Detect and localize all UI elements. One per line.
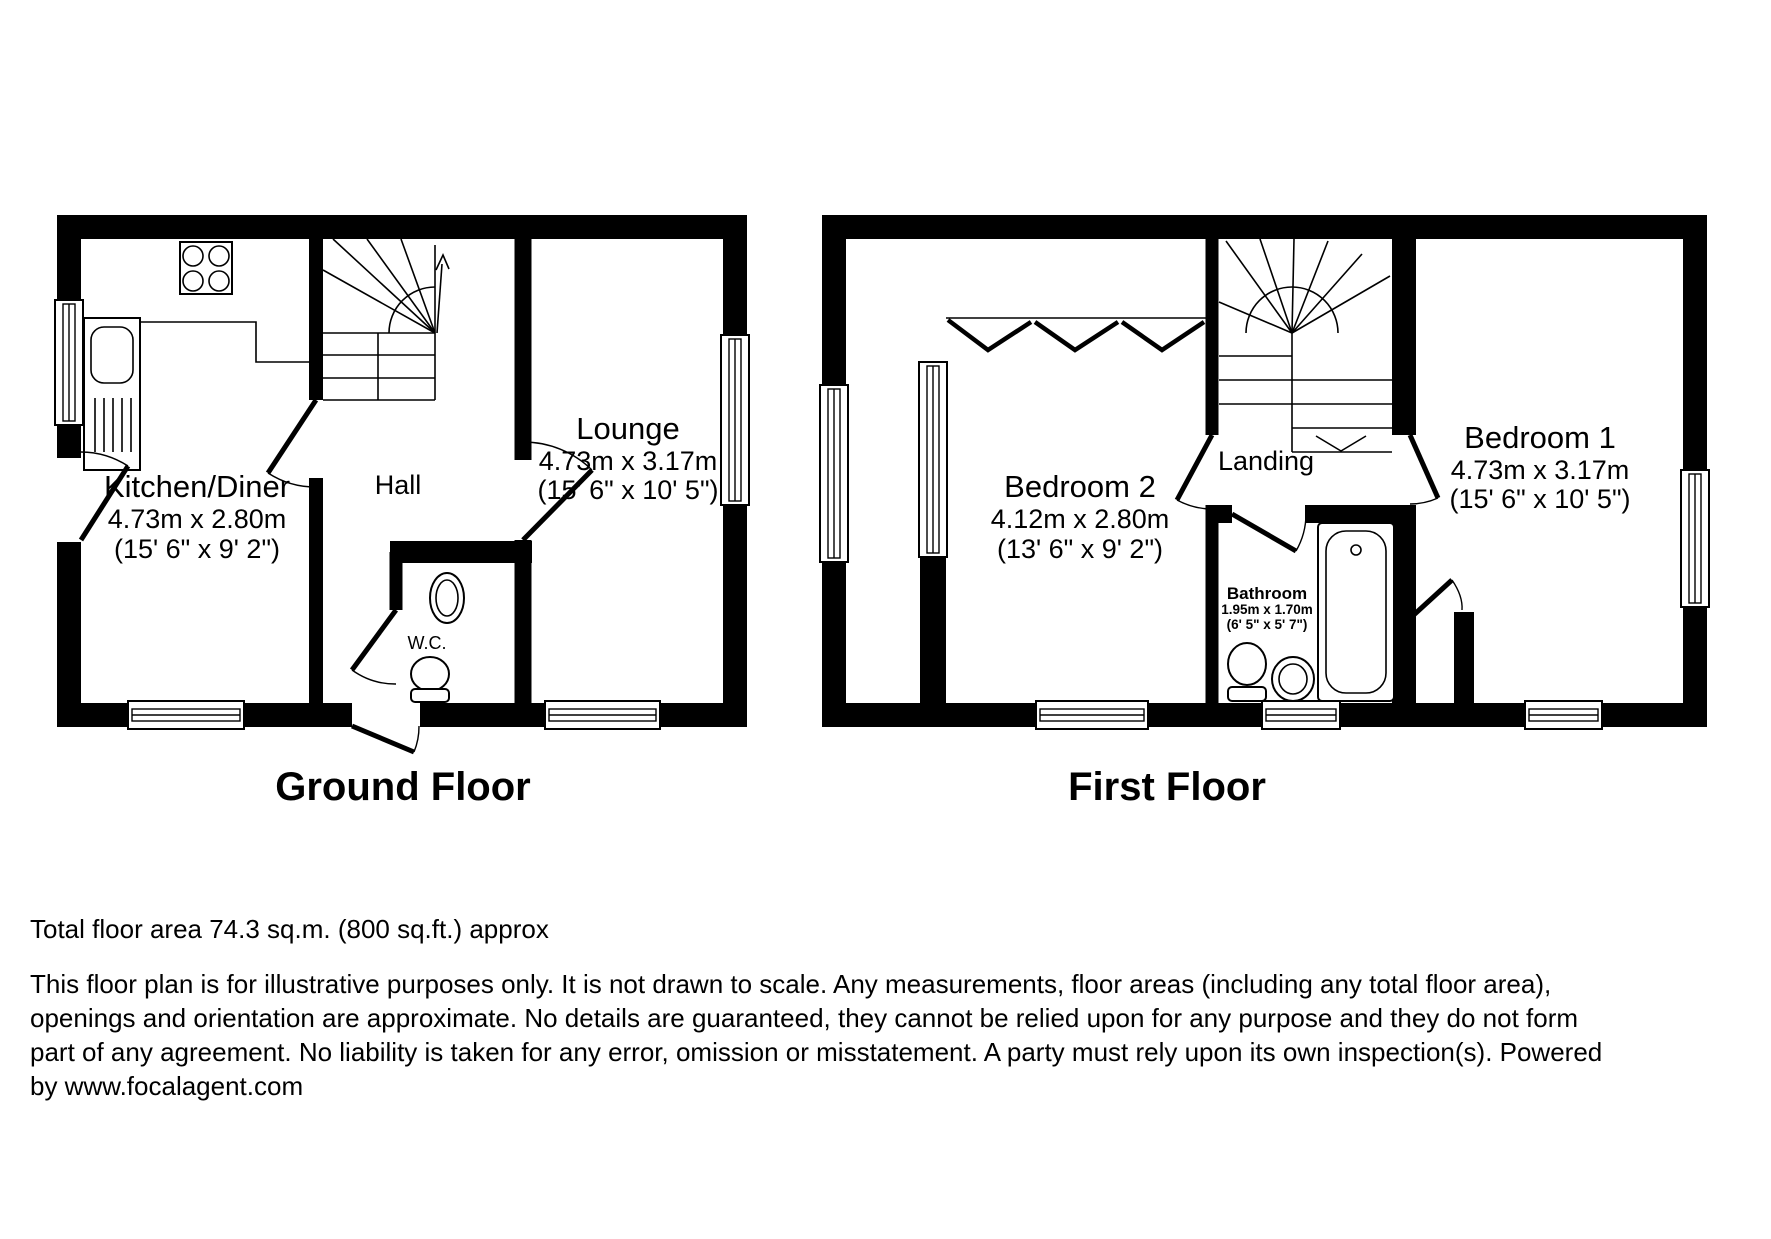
lounge-window-right — [721, 335, 749, 505]
first-window-bottom-left — [1036, 701, 1148, 729]
stairs-up-arrow — [436, 255, 449, 333]
first-floor-title: First Floor — [1068, 765, 1266, 809]
bedroom1-door — [1410, 435, 1438, 504]
bedroom1-dim-imperial: (15' 6" x 10' 5") — [1449, 484, 1630, 514]
wc-label: W.C. — [408, 633, 447, 653]
floorplan-page: Kitchen/Diner 4.73m x 2.80m (15' 6" x 9'… — [0, 0, 1771, 1239]
kitchen-dim-metric: 4.73m x 2.80m — [108, 504, 287, 534]
total-floor-area: Total floor area 74.3 sq.m. (800 sq.ft.)… — [30, 914, 1745, 945]
first-stairs-winders — [1219, 239, 1390, 333]
kitchen-label: Kitchen/Diner — [104, 469, 290, 504]
lounge-label: Lounge — [576, 411, 679, 446]
lounge-dim-imperial: (15' 6" x 10' 5") — [537, 475, 718, 505]
disclaimer-line-2: openings and orientation are approximate… — [30, 1001, 1745, 1035]
bedroom2-dim-metric: 4.12m x 2.80m — [991, 504, 1170, 534]
bedroom1-window-right — [1681, 470, 1709, 607]
bathroom-door — [1232, 514, 1306, 551]
landing-label: Landing — [1218, 446, 1314, 476]
bedroom1-dim-metric: 4.73m x 3.17m — [1451, 455, 1630, 485]
floorplan-drawing: Kitchen/Diner 4.73m x 2.80m (15' 6" x 9'… — [0, 0, 1771, 860]
wc-basin-icon — [430, 573, 464, 623]
first-window-left-outer — [820, 385, 848, 562]
footer: Total floor area 74.3 sq.m. (800 sq.ft.)… — [30, 914, 1745, 1103]
ground-floor-plan: Kitchen/Diner 4.73m x 2.80m (15' 6" x 9'… — [55, 227, 749, 809]
first-stairs — [1219, 239, 1392, 452]
kitchen-counter — [140, 322, 309, 362]
bedroom1-label: Bedroom 1 — [1464, 420, 1616, 455]
wc-door — [352, 610, 396, 684]
hall-label: Hall — [375, 470, 422, 500]
bathtub-icon — [1318, 523, 1394, 701]
front-door-opening — [352, 701, 420, 729]
bathroom-dim-metric: 1.95m x 1.70m — [1221, 602, 1313, 617]
lounge-dim-metric: 4.73m x 3.17m — [539, 446, 718, 476]
ground-stairs — [323, 239, 449, 400]
bedroom2-dim-imperial: (13' 6" x 9' 2") — [997, 534, 1163, 564]
ground-floor-title: Ground Floor — [275, 765, 531, 809]
bathroom-label: Bathroom — [1227, 584, 1307, 603]
ground-window-left — [55, 300, 83, 425]
kitchen-exterior-door-opening — [55, 458, 83, 542]
bathroom-dim-imperial: (6' 5" x 5' 7") — [1227, 617, 1308, 632]
disclaimer-line-3: part of any agreement. No liability is t… — [30, 1035, 1745, 1069]
bathroom-basin-icon — [1272, 657, 1314, 701]
bathroom-toilet-icon — [1228, 643, 1266, 701]
kitchen-sink-icon — [84, 318, 140, 470]
first-window-bottom-right — [1525, 701, 1602, 729]
ground-window-bottom-left — [128, 701, 244, 729]
first-window-bottom-middle — [1262, 701, 1340, 729]
bedroom2-wardrobe — [946, 318, 1206, 350]
stairs-down-arrow — [1316, 436, 1366, 451]
wc-toilet-icon — [411, 657, 449, 702]
kitchen-hob-icon — [180, 242, 232, 294]
disclaimer-line-4: by www.focalagent.com — [30, 1069, 1745, 1103]
bedroom2-window-left — [919, 362, 947, 557]
bedroom2-label: Bedroom 2 — [1004, 469, 1156, 504]
disclaimer-line-1: This floor plan is for illustrative purp… — [30, 967, 1745, 1001]
ground-window-bottom-right — [545, 701, 660, 729]
first-floor-plan: Bedroom 2 4.12m x 2.80m (13' 6" x 9' 2")… — [820, 227, 1709, 809]
bedroom2-door — [1177, 435, 1212, 509]
ground-stairs-winders — [323, 239, 435, 333]
front-door — [352, 726, 419, 752]
kitchen-dim-imperial: (15' 6" x 9' 2") — [114, 534, 280, 564]
